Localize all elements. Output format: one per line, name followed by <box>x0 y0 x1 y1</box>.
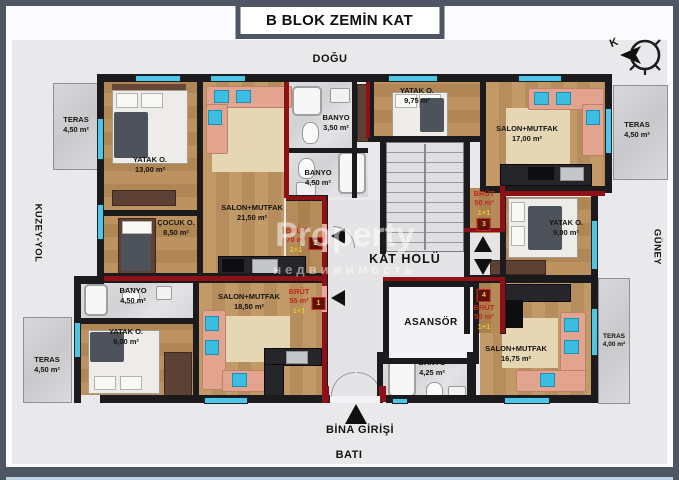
window <box>204 397 248 404</box>
wall <box>464 136 470 334</box>
wall <box>197 78 203 278</box>
apartment-boundary <box>286 196 326 200</box>
watermark-line1: Property <box>275 216 415 255</box>
entrance-door <box>330 396 380 403</box>
kitchen-sink <box>286 351 308 364</box>
room-label-teras-tl: TERAS4,50 m² <box>63 115 89 135</box>
direction-label-north-road: KUZEY-YOL <box>33 204 44 263</box>
window <box>135 75 181 82</box>
wall <box>352 78 357 198</box>
arrow-left-icon <box>331 290 345 306</box>
room-label-yatak975: YATAK O.9,75 m² <box>400 86 434 106</box>
apartment-tag-4: 4 BRÜT 50 m² 1+1 <box>474 289 495 331</box>
frame-right <box>673 0 679 480</box>
wall <box>467 352 476 403</box>
window <box>97 204 104 240</box>
window <box>74 322 81 358</box>
cushion <box>556 92 571 105</box>
compass-icon: K <box>608 30 668 84</box>
stove <box>222 259 244 272</box>
window <box>392 398 408 404</box>
floor-plan-page: B BLOK ZEMİN KAT ASANSÖR <box>0 0 679 480</box>
apartment-tag-1: BRÜT 55 m² 1+1 1 <box>289 287 310 315</box>
stove <box>528 167 554 180</box>
apartment-boundary <box>505 191 605 196</box>
room-label-salon2150: SALON+MUTFAK21,50 m² <box>221 203 283 223</box>
sink <box>156 286 172 300</box>
apartment-badge-1: 1 <box>311 297 325 310</box>
room-label-salon1675: SALON+MUTFAK16,75 m² <box>485 344 547 364</box>
oven <box>505 300 523 328</box>
room-label-cocuk: ÇOCUK O.8,50 m² <box>157 218 195 238</box>
apartment-badge-3: 3 <box>477 218 491 231</box>
pillow <box>116 93 138 108</box>
room-label-banyo350: BANYO3,50 m² <box>322 113 349 133</box>
apartment-boundary <box>366 82 370 138</box>
wall <box>97 74 104 282</box>
direction-label-east: DOĞU <box>313 53 348 65</box>
toilet <box>302 122 319 144</box>
blanket <box>121 234 151 271</box>
pillow <box>511 226 525 246</box>
cushion <box>205 316 219 331</box>
room-label-teras-tr: TERAS4,50 m² <box>624 120 650 140</box>
apartment-tag-3: BRÜT 50 m² 1+1 3 <box>474 189 495 231</box>
room-label-yatak13: YATAK O.13,00 m² <box>133 155 167 175</box>
wall <box>480 74 486 192</box>
pillow <box>122 221 152 234</box>
kitchen-counter <box>264 364 284 399</box>
arrow-down-icon <box>474 259 492 275</box>
window <box>388 75 438 82</box>
entrance-post <box>379 386 386 402</box>
page-title: B BLOK ZEMİN KAT <box>235 2 444 39</box>
pillow <box>120 376 142 390</box>
arrow-up-icon <box>474 236 492 252</box>
shower <box>292 86 322 116</box>
room-label-salon1700: SALON+MUTFAK17,00 m² <box>496 124 558 144</box>
wall <box>74 318 199 324</box>
cushion <box>214 90 229 103</box>
blanket <box>114 112 148 158</box>
window <box>591 308 598 356</box>
entrance-label: BİNA GİRİŞİ <box>326 424 394 436</box>
stair-rail <box>424 144 426 250</box>
room-label-banyo425: BANYO4,25 m² <box>418 358 445 378</box>
cushion <box>534 92 549 105</box>
entrance-post <box>322 386 329 402</box>
sink <box>330 88 350 103</box>
cushion <box>540 373 555 387</box>
cushion <box>205 340 219 355</box>
cushion <box>236 90 251 103</box>
cushion <box>564 318 579 332</box>
frame-left <box>0 0 6 480</box>
wall <box>100 210 200 216</box>
window <box>605 108 612 154</box>
pillow <box>94 376 116 390</box>
apartment-boundary <box>500 186 505 232</box>
room-label-teras-bl: TERAS4,50 m² <box>34 355 60 375</box>
watermark-line2: недвижимость <box>273 262 416 277</box>
window <box>210 75 246 82</box>
direction-label-south: GÜNEY <box>652 229 663 265</box>
apartment-badge-4: 4 <box>477 289 491 302</box>
wall <box>193 282 199 403</box>
room-label-salon1850: SALON+MUTFAK18,50 m² <box>218 292 280 312</box>
frame-bottom <box>0 467 679 477</box>
apartment-boundary <box>284 82 289 198</box>
direction-label-west: BATI <box>336 449 363 461</box>
dresser-yatak13 <box>112 190 176 206</box>
kitchen-sink <box>560 167 584 181</box>
cushion <box>564 340 579 354</box>
room-label-banyo450-left: BANYO4,50 m² <box>119 286 146 306</box>
room-label-teras-br: TERAS4,00 m² <box>603 333 625 350</box>
compass-north-label: K <box>608 36 620 50</box>
bathtub <box>84 284 108 316</box>
elevator-label: ASANSÖR <box>404 317 458 328</box>
apartment-boundary <box>383 277 467 281</box>
room-label-banyo450-mid: BANYO4,50 m² <box>304 168 331 188</box>
window <box>504 397 550 404</box>
window <box>518 75 562 82</box>
apartment-boundary <box>500 280 505 333</box>
entrance-arrow-icon <box>345 404 367 424</box>
pillow <box>511 202 525 222</box>
window <box>97 118 104 160</box>
window <box>591 220 598 270</box>
cushion <box>586 110 600 125</box>
room-label-yatak9-right: YATAK O.9,00 m² <box>549 218 583 238</box>
apartment-boundary <box>464 277 505 281</box>
wardrobe <box>164 352 192 396</box>
pillow <box>141 93 163 108</box>
cushion <box>232 373 247 387</box>
wardrobe <box>490 260 546 275</box>
wall <box>386 395 598 403</box>
cushion <box>208 110 222 125</box>
room-label-yatak9-bl: YATAK O.9,00 m² <box>109 327 143 347</box>
